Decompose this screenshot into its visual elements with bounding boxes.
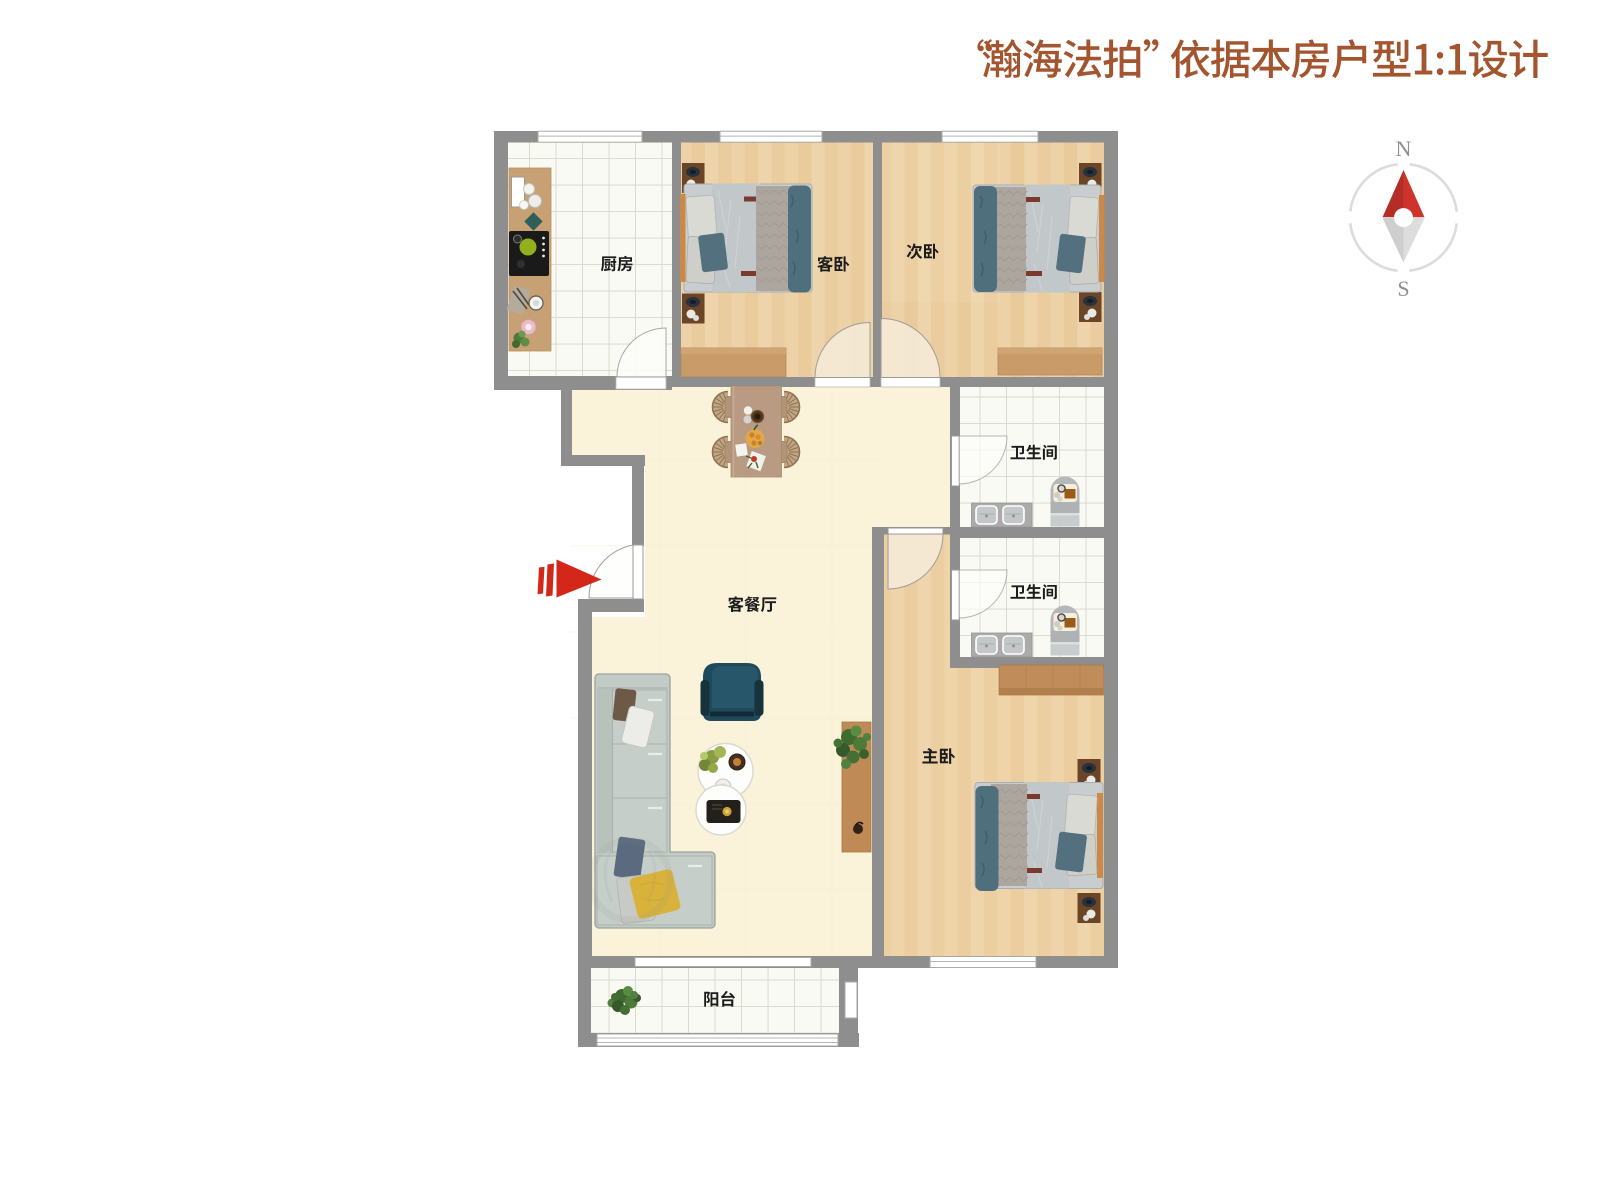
svg-text:N: N — [1396, 136, 1412, 161]
svg-text:S: S — [1397, 276, 1409, 301]
